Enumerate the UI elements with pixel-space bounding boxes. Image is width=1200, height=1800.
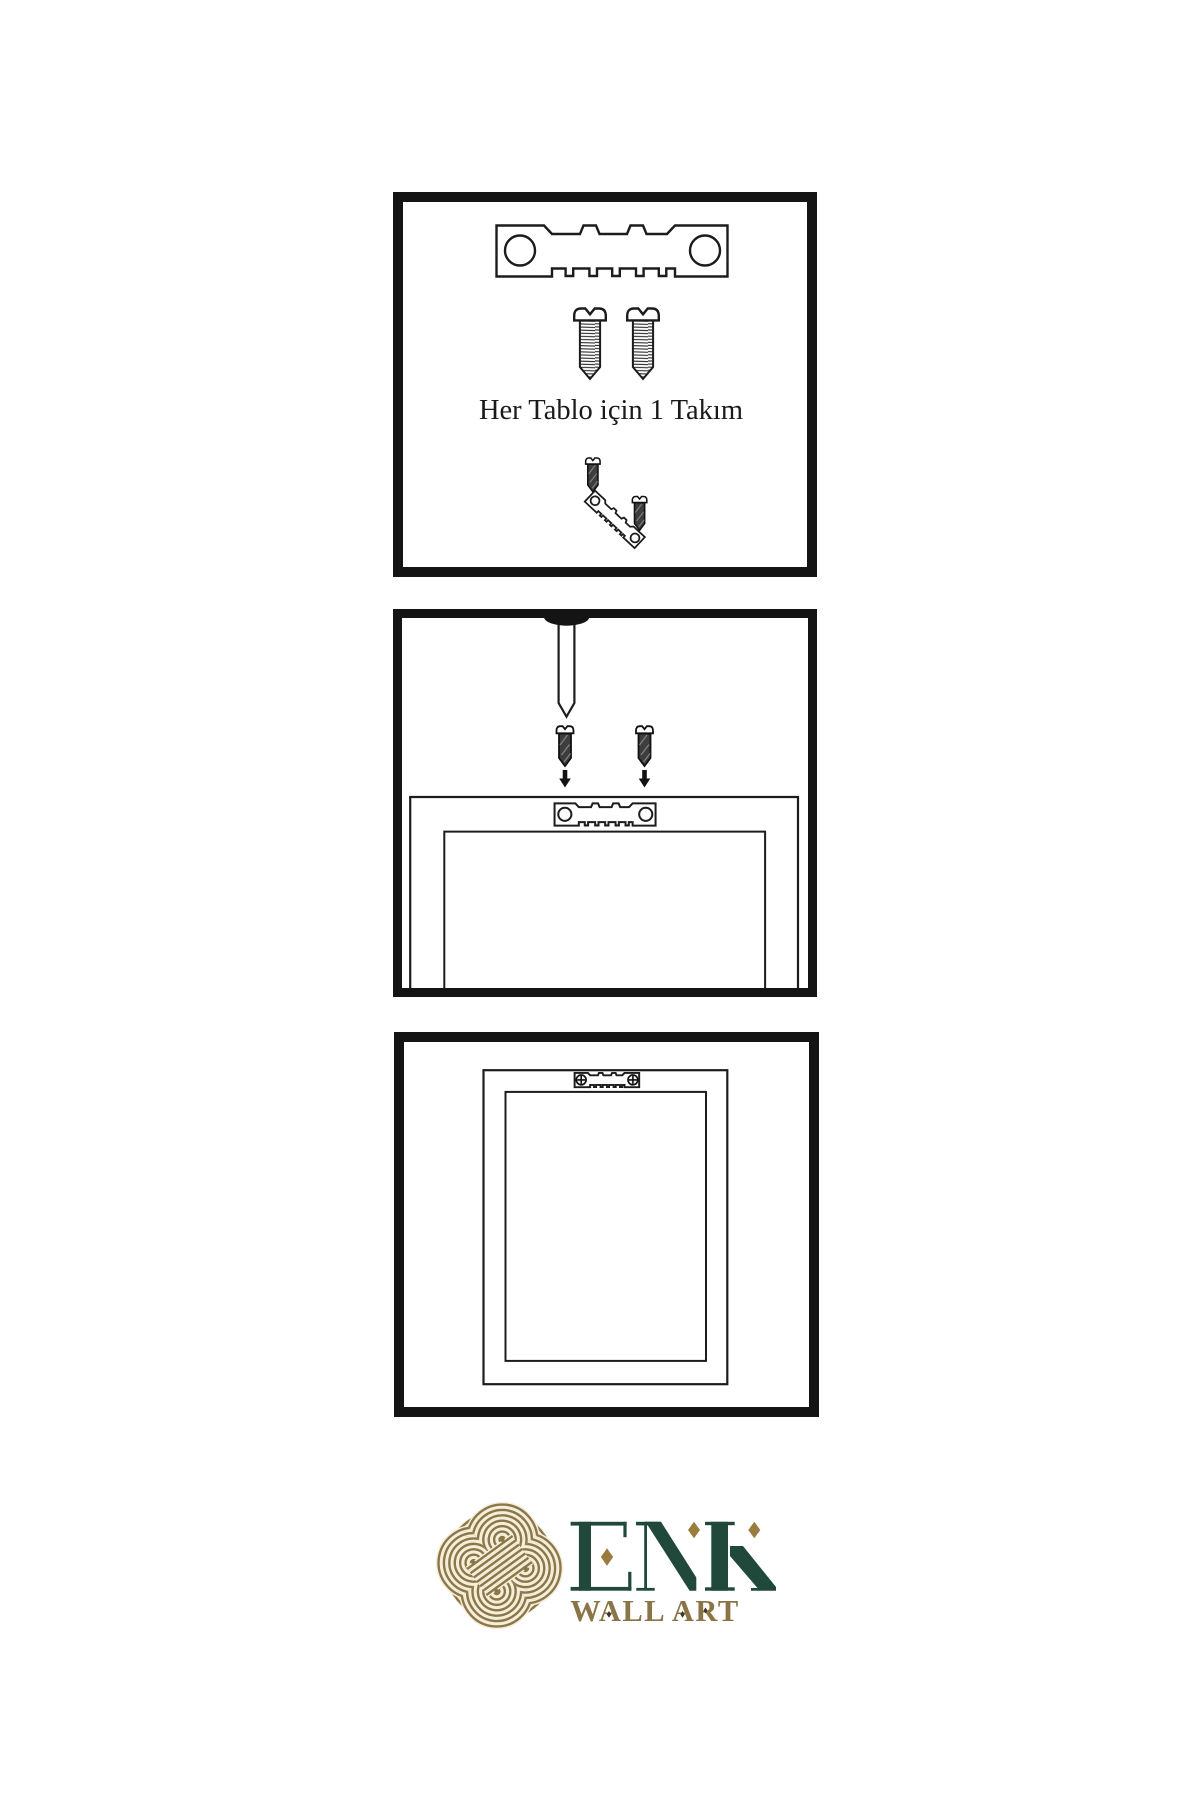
svg-text:Her Tablo için 1 Takım: Her Tablo için 1 Takım — [479, 395, 743, 426]
svg-text:WALL ART: WALL ART — [570, 1594, 739, 1628]
